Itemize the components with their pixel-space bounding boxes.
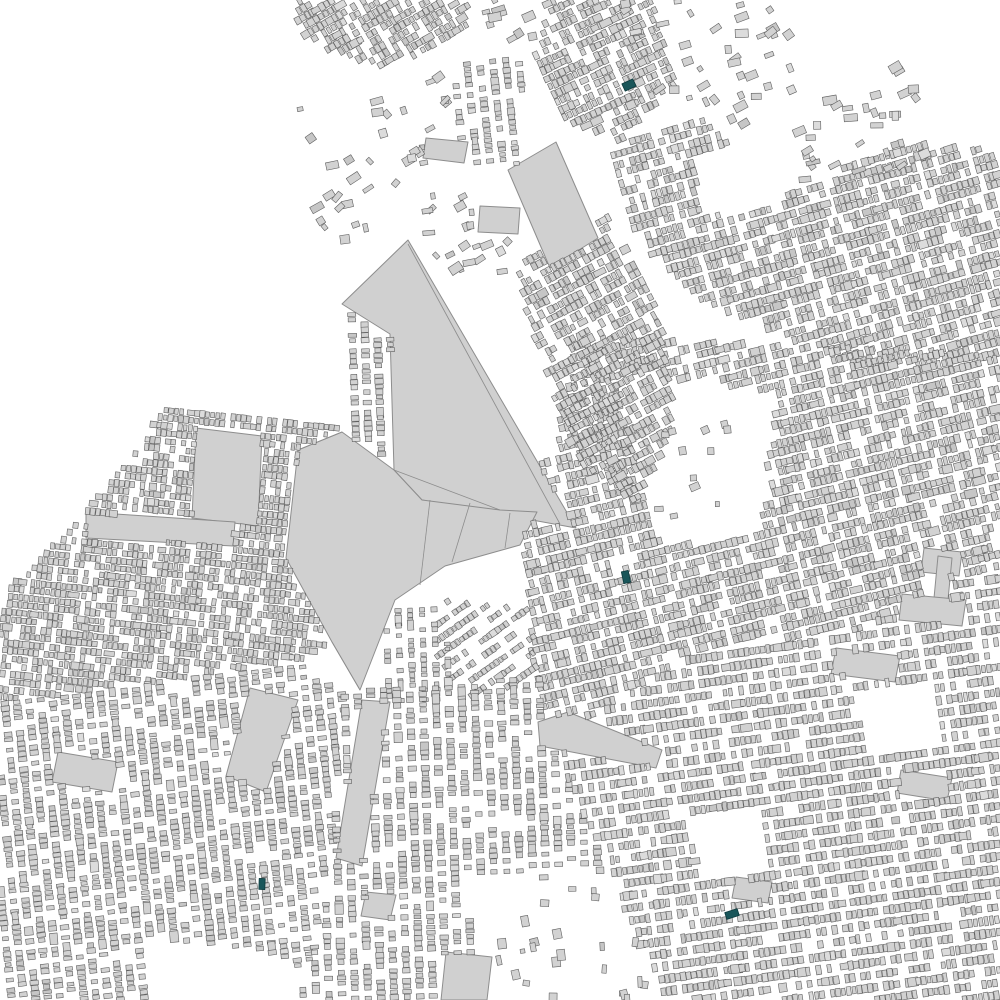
map-view — [0, 0, 1000, 1000]
building-footprint-canvas — [0, 0, 1000, 1000]
